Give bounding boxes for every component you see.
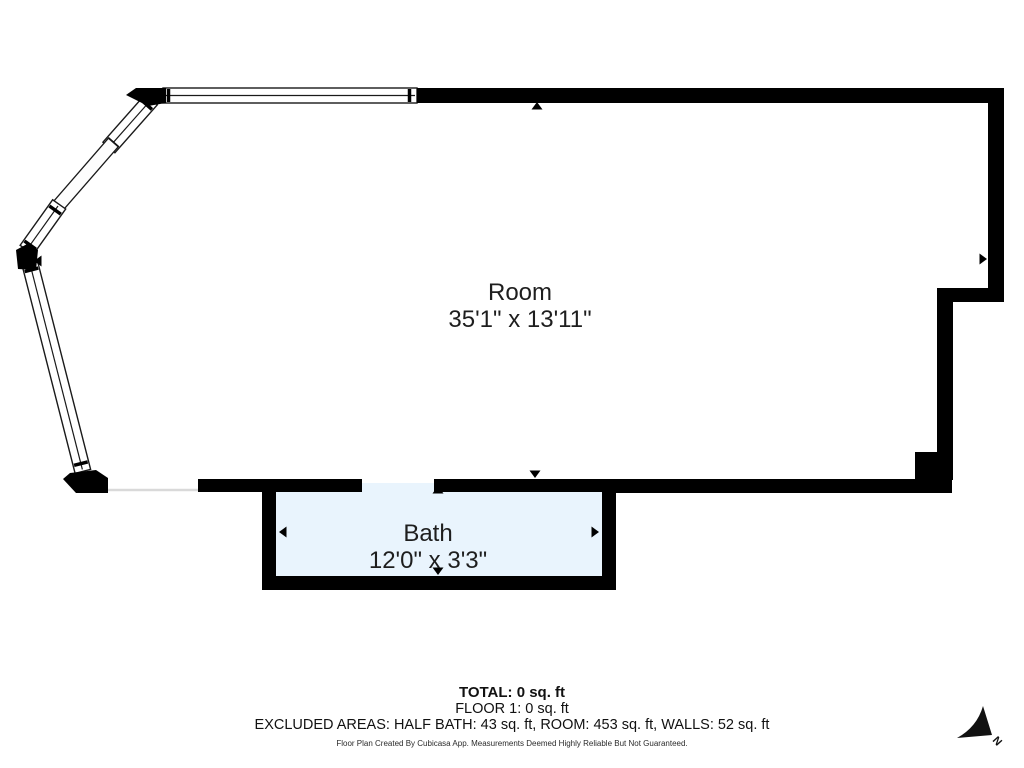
room-dimensions: 35'1" x 13'11" [370, 306, 670, 333]
wall-notch-side [937, 288, 953, 454]
room-label-group: Room 35'1" x 13'11" [370, 279, 670, 333]
wall-top [417, 88, 1004, 103]
room-label: Room [370, 279, 670, 306]
bath-dimensions: 12'0" x 3'3" [328, 547, 528, 574]
dimension-arrow-room-bottom [530, 471, 541, 479]
bath-wall-top-left [198, 479, 362, 492]
total-area: TOTAL: 0 sq. ft [0, 684, 1024, 701]
dimension-arrow-room-top [532, 102, 543, 110]
wall-right [988, 88, 1004, 302]
corner-top-left [126, 88, 166, 106]
summary-block: TOTAL: 0 sq. ft FLOOR 1: 0 sq. ft EXCLUD… [0, 684, 1024, 749]
floor-plan: N [0, 0, 1024, 768]
wall-notch-block [915, 452, 953, 480]
bath-wall-left [262, 479, 276, 590]
bay-wall-segment [51, 138, 119, 213]
dimension-arrow-room-right [980, 254, 988, 265]
floor-plan-page: N Room 35'1" x 13'11" Bath 12'0" x 3'3" … [0, 0, 1024, 768]
bath-wall-right [602, 479, 616, 590]
wall-bottom-right [602, 479, 952, 493]
bath-label: Bath [328, 520, 528, 547]
window-left [22, 260, 91, 473]
bath-label-group: Bath 12'0" x 3'3" [328, 520, 528, 574]
excluded-areas: EXCLUDED AREAS: HALF BATH: 43 sq. ft, RO… [0, 717, 1024, 733]
corner-bottom-left [63, 470, 108, 493]
disclaimer: Floor Plan Created By Cubicasa App. Meas… [0, 739, 1024, 749]
window-top [163, 88, 417, 103]
floor-area: FLOOR 1: 0 sq. ft [0, 701, 1024, 717]
bath-wall-top-right [434, 479, 602, 492]
bath-wall-bottom [262, 576, 616, 590]
